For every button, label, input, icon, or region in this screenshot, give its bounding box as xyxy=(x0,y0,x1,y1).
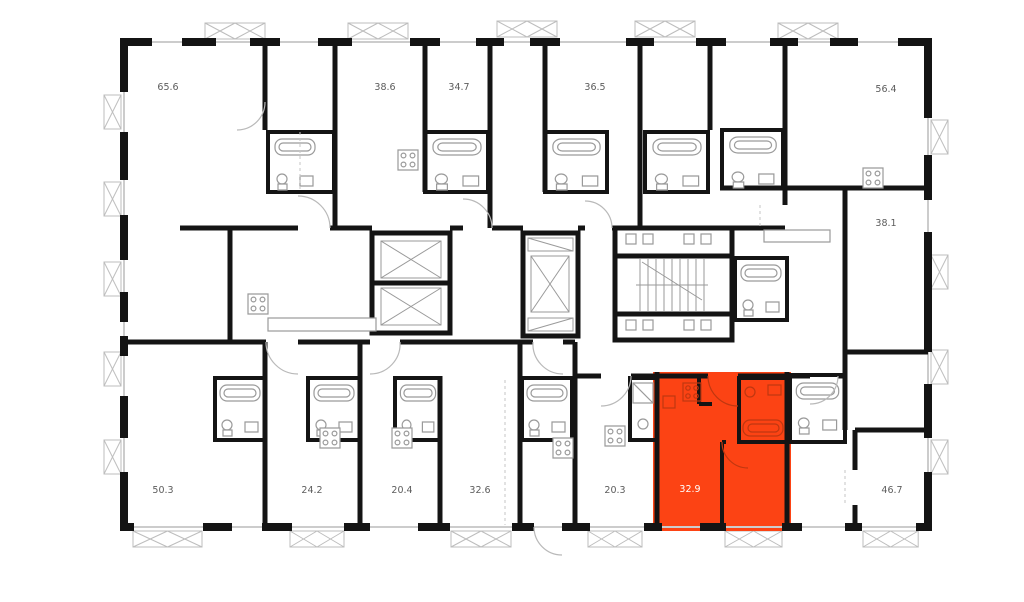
balcony xyxy=(348,23,408,39)
unit-region-20-4[interactable] xyxy=(360,342,440,527)
unit-region-24-2[interactable] xyxy=(265,342,360,527)
unit-region-56-4[interactable] xyxy=(785,42,928,188)
elevator-block-left xyxy=(372,233,450,333)
balcony xyxy=(588,531,642,547)
balcony xyxy=(863,531,918,547)
unit-region-34-7[interactable] xyxy=(425,42,545,228)
stove-icon xyxy=(248,294,268,314)
balcony xyxy=(778,23,838,39)
unit-region-46-7[interactable] xyxy=(787,342,928,527)
unit-region-36-5[interactable] xyxy=(545,42,640,228)
floor-plan: 65.6 38.6 34.7 36.5 56.4 38.1 50.3 24.2 … xyxy=(0,0,1024,602)
bathroom xyxy=(653,139,701,190)
bathroom xyxy=(741,265,781,316)
balcony xyxy=(290,531,344,547)
balcony xyxy=(104,262,121,296)
balcony xyxy=(635,21,695,37)
elevator-block-middle xyxy=(523,233,578,336)
staircase xyxy=(615,228,732,340)
balcony xyxy=(104,95,121,129)
balcony xyxy=(205,23,265,39)
unit-region-32-6[interactable] xyxy=(440,342,575,527)
wardrobe xyxy=(764,230,830,242)
unit-hit-regions xyxy=(124,42,928,527)
wardrobe xyxy=(268,318,376,331)
balcony xyxy=(451,531,511,547)
balcony xyxy=(133,531,202,547)
unit-region-38-1[interactable] xyxy=(845,188,928,352)
unit-region-32-9-selected[interactable] xyxy=(657,376,787,527)
balcony xyxy=(931,120,948,154)
balcony xyxy=(931,440,948,474)
balcony xyxy=(104,182,121,216)
balcony xyxy=(104,440,121,474)
bathroom xyxy=(730,137,776,188)
unit-region-20-3[interactable] xyxy=(575,342,657,527)
unit-region-50-3[interactable] xyxy=(124,342,265,527)
balcony xyxy=(104,352,121,386)
core xyxy=(372,228,732,340)
balcony xyxy=(725,531,782,547)
unit-region-65-6[interactable] xyxy=(124,42,335,228)
balcony xyxy=(931,255,948,289)
entrance-door xyxy=(534,527,562,555)
balcony xyxy=(497,21,557,37)
balcony xyxy=(931,350,948,384)
unit-region-38-6[interactable] xyxy=(335,42,425,228)
